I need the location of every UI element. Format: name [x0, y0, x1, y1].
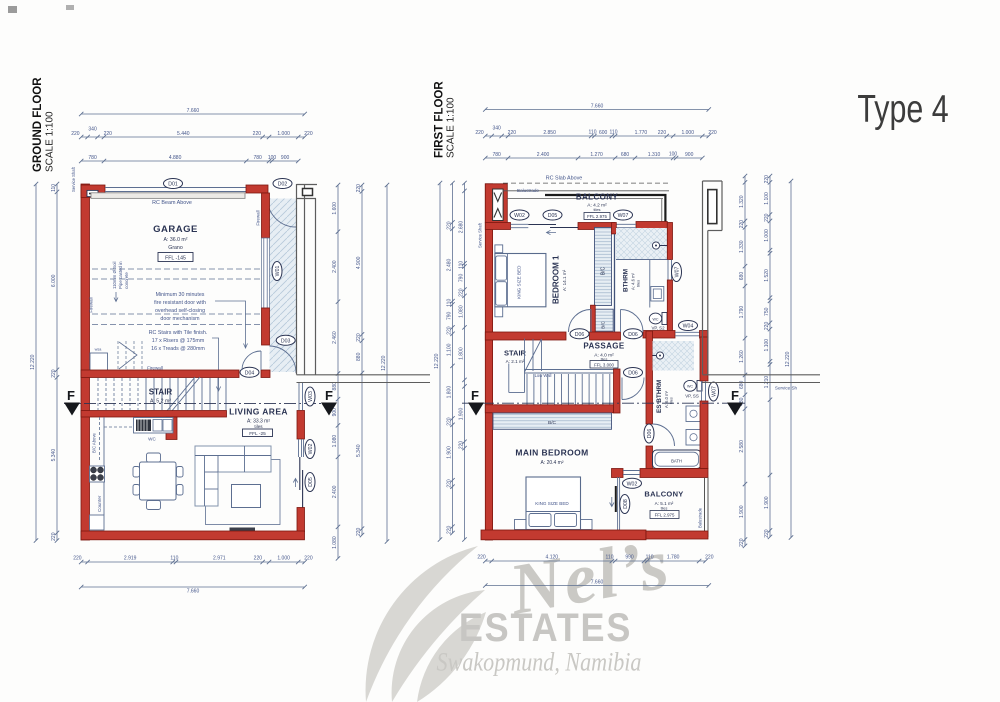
svg-text:7.660: 7.660 — [591, 579, 604, 585]
svg-text:220: 220 — [459, 288, 465, 297]
svg-text:door mechanism: door mechanism — [160, 316, 200, 322]
svg-text:220: 220 — [71, 131, 80, 137]
svg-text:W01: W01 — [275, 266, 281, 277]
svg-text:4.120: 4.120 — [546, 554, 559, 560]
svg-text:220: 220 — [764, 529, 770, 538]
svg-text:VP, S2: VP, S2 — [651, 326, 665, 331]
svg-text:D06: D06 — [575, 332, 585, 338]
svg-text:16 x Treads @ 280mm: 16 x Treads @ 280mm — [151, 346, 205, 352]
svg-text:110: 110 — [606, 554, 614, 560]
svg-text:220: 220 — [253, 131, 262, 137]
svg-text:F: F — [731, 388, 739, 403]
svg-text:tiles: tiles — [661, 507, 668, 511]
svg-text:B/C Above: B/C Above — [92, 433, 97, 453]
svg-text:Swakopmund, Namibia: Swakopmund, Namibia — [437, 649, 642, 677]
svg-text:340: 340 — [493, 125, 502, 131]
svg-text:780: 780 — [254, 155, 263, 161]
svg-text:A: 6.0 m²: A: 6.0 m² — [664, 390, 669, 408]
svg-text:1.770: 1.770 — [635, 130, 648, 136]
svg-text:1.080: 1.080 — [332, 435, 338, 448]
svg-text:B/C: B/C — [601, 266, 607, 275]
svg-text:W07: W07 — [712, 386, 718, 397]
svg-text:FFL 3.000: FFL 3.000 — [594, 362, 614, 367]
svg-text:Type 4: Type 4 — [857, 87, 948, 130]
svg-text:600: 600 — [599, 130, 608, 136]
svg-text:1.900: 1.900 — [739, 505, 745, 518]
svg-text:220: 220 — [73, 555, 82, 561]
svg-text:1.900: 1.900 — [459, 408, 465, 421]
svg-text:FFL -25: FFL -25 — [249, 431, 266, 437]
svg-text:A: 5.1 m²: A: 5.1 m² — [655, 501, 674, 506]
svg-text:110mm Ø Soil: 110mm Ø Soil — [112, 261, 117, 289]
svg-text:790: 790 — [459, 274, 465, 283]
svg-text:STAIR: STAIR — [504, 349, 527, 358]
svg-text:5.440: 5.440 — [177, 131, 190, 137]
svg-text:FFL 2.975: FFL 2.975 — [587, 214, 607, 219]
svg-text:Minimum 30 minutes: Minimum 30 minutes — [156, 292, 205, 298]
svg-text:B/C: B/C — [601, 320, 606, 328]
svg-text:220: 220 — [764, 322, 770, 331]
svg-text:790: 790 — [447, 311, 453, 320]
svg-text:1.260: 1.260 — [739, 350, 745, 363]
svg-text:STAIR: STAIR — [149, 388, 173, 397]
svg-text:W07: W07 — [675, 267, 681, 278]
svg-text:1.100: 1.100 — [764, 192, 770, 205]
svg-text:FFL 2.975: FFL 2.975 — [655, 513, 675, 518]
svg-text:W04: W04 — [683, 324, 694, 330]
svg-text:220: 220 — [459, 441, 465, 450]
svg-text:D05: D05 — [548, 213, 558, 219]
svg-text:D05: D05 — [308, 477, 314, 487]
svg-text:12.220: 12.220 — [785, 351, 791, 367]
svg-text:17 x Risers @ 175mm: 17 x Risers @ 175mm — [152, 338, 205, 344]
svg-text:220: 220 — [447, 417, 453, 426]
svg-text:W02: W02 — [514, 213, 525, 219]
svg-text:900: 900 — [332, 408, 338, 417]
svg-text:7.660: 7.660 — [187, 589, 200, 595]
svg-text:PASSAGE: PASSAGE — [583, 342, 625, 351]
svg-text:1.270: 1.270 — [590, 152, 603, 158]
svg-text:780: 780 — [88, 155, 97, 161]
svg-text:Grano: Grano — [168, 245, 183, 251]
svg-text:220: 220 — [51, 369, 57, 378]
svg-text:780: 780 — [493, 152, 502, 158]
svg-text:1.000: 1.000 — [277, 131, 290, 137]
svg-text:680: 680 — [739, 380, 745, 389]
svg-text:D06: D06 — [647, 429, 653, 439]
svg-text:2.460: 2.460 — [332, 331, 338, 344]
svg-text:100: 100 — [268, 155, 277, 161]
svg-text:220: 220 — [739, 538, 745, 547]
svg-text:220: 220 — [477, 554, 486, 560]
svg-text:D06: D06 — [628, 332, 638, 338]
svg-text:A: 36.0 m²: A: 36.0 m² — [164, 237, 188, 243]
svg-text:1.520: 1.520 — [764, 269, 770, 282]
svg-text:220: 220 — [447, 221, 453, 230]
svg-text:1.600: 1.600 — [332, 202, 338, 215]
svg-text:Service Shaft: Service Shaft — [71, 166, 76, 192]
svg-text:220: 220 — [104, 131, 113, 137]
svg-text:WC: WC — [148, 437, 156, 442]
svg-text:220: 220 — [254, 555, 263, 561]
svg-text:680: 680 — [621, 152, 630, 158]
svg-text:110: 110 — [610, 130, 618, 136]
svg-text:680: 680 — [739, 272, 745, 281]
svg-text:A: 2.1 m²: A: 2.1 m² — [506, 359, 525, 364]
svg-text:BALCONY: BALCONY — [644, 490, 683, 499]
svg-text:220: 220 — [705, 554, 714, 560]
svg-text:220: 220 — [447, 479, 453, 488]
svg-text:A: 14.1 m²: A: 14.1 m² — [562, 269, 567, 291]
svg-text:220: 220 — [764, 175, 770, 184]
svg-text:Pipe casted in: Pipe casted in — [118, 261, 123, 289]
svg-text:Firewall: Firewall — [255, 210, 260, 225]
svg-text:Counter: Counter — [97, 495, 102, 512]
svg-text:Service Sh: Service Sh — [775, 386, 798, 391]
svg-text:W07: W07 — [618, 213, 629, 219]
svg-text:overhead self-closing: overhead self-closing — [155, 308, 205, 314]
svg-text:750: 750 — [764, 307, 770, 316]
svg-text:1.900: 1.900 — [764, 496, 770, 509]
svg-text:2.971: 2.971 — [213, 555, 226, 561]
svg-text:A: 20.4 m²: A: 20.4 m² — [540, 460, 563, 466]
svg-text:220: 220 — [708, 130, 717, 136]
svg-text:tiles: tiles — [254, 424, 263, 429]
svg-text:220: 220 — [658, 130, 667, 136]
svg-text:220: 220 — [356, 333, 362, 342]
svg-text:D02: D02 — [278, 182, 288, 188]
svg-text:B/C: B/C — [548, 420, 557, 426]
svg-text:2.400: 2.400 — [332, 260, 338, 273]
svg-text:1.800: 1.800 — [459, 347, 465, 360]
svg-text:D03: D03 — [281, 338, 291, 344]
svg-text:990: 990 — [625, 554, 634, 560]
svg-text:F: F — [325, 388, 333, 403]
svg-text:1.790: 1.790 — [739, 306, 745, 319]
svg-text:W03: W03 — [308, 391, 314, 402]
svg-text:wsa: wsa — [95, 348, 103, 352]
svg-text:900: 900 — [281, 155, 290, 161]
svg-text:tiles: tiles — [593, 207, 600, 212]
svg-text:2.400: 2.400 — [332, 485, 338, 498]
svg-text:D08: D08 — [623, 499, 629, 509]
svg-text:BEDROOM 1: BEDROOM 1 — [552, 255, 561, 304]
svg-text:WC: WC — [653, 317, 659, 321]
svg-text:2.919: 2.919 — [124, 555, 137, 561]
svg-text:2.580: 2.580 — [739, 440, 745, 453]
svg-text:1.100: 1.100 — [764, 339, 770, 352]
svg-text:ESTATES: ESTATES — [459, 606, 632, 650]
svg-text:220: 220 — [508, 130, 517, 136]
svg-text:900: 900 — [685, 152, 694, 158]
svg-text:110: 110 — [51, 184, 57, 192]
svg-text:F: F — [471, 388, 479, 403]
svg-text:SCALE 1:100: SCALE 1:100 — [45, 111, 56, 172]
svg-text:4.900: 4.900 — [356, 256, 362, 269]
svg-text:110: 110 — [447, 299, 453, 307]
svg-text:D01: D01 — [168, 182, 178, 188]
svg-text:1.000: 1.000 — [681, 130, 694, 136]
svg-text:Balustrade: Balustrade — [698, 507, 703, 528]
svg-text:220: 220 — [447, 326, 453, 335]
svg-text:12.220: 12.220 — [381, 355, 387, 371]
svg-text:1.080: 1.080 — [332, 536, 338, 549]
svg-text:KING SIZE BED: KING SIZE BED — [517, 265, 522, 299]
svg-text:1.310: 1.310 — [648, 152, 661, 158]
svg-text:110: 110 — [459, 261, 465, 269]
svg-text:6.000: 6.000 — [51, 274, 57, 287]
svg-text:Firewall: Firewall — [89, 297, 94, 312]
svg-text:fire resistant door with: fire resistant door with — [154, 300, 206, 306]
svg-text:220: 220 — [739, 220, 745, 229]
svg-text:SCALE 1:100: SCALE 1:100 — [446, 97, 457, 158]
svg-text:12.220: 12.220 — [434, 353, 440, 369]
svg-text:VP, SS: VP, SS — [685, 394, 699, 399]
svg-text:ES BTHRM: ES BTHRM — [656, 380, 663, 413]
svg-text:WC: WC — [687, 385, 693, 389]
svg-text:MAIN BEDROOM: MAIN BEDROOM — [515, 448, 588, 458]
svg-text:GARAGE: GARAGE — [153, 224, 198, 235]
svg-text:KING SIZE BED: KING SIZE BED — [535, 501, 569, 506]
svg-text:1.780: 1.780 — [667, 554, 680, 560]
svg-text:220: 220 — [304, 131, 313, 137]
svg-text:7.660: 7.660 — [187, 108, 200, 114]
svg-text:1.800: 1.800 — [447, 386, 453, 399]
svg-text:220: 220 — [475, 130, 484, 136]
svg-text:BTHRM: BTHRM — [623, 269, 630, 292]
svg-text:RC Slab Above: RC Slab Above — [546, 176, 583, 182]
svg-text:LIVING AREA: LIVING AREA — [229, 407, 288, 417]
svg-text:RC Stairs with Tile finish.: RC Stairs with Tile finish. — [149, 330, 208, 336]
svg-text:220: 220 — [51, 532, 57, 541]
svg-text:1.320: 1.320 — [739, 195, 745, 208]
svg-text:220: 220 — [764, 213, 770, 222]
svg-text:1.330: 1.330 — [739, 240, 745, 253]
svg-text:tiles: tiles — [636, 280, 641, 287]
svg-text:5.340: 5.340 — [356, 444, 362, 457]
svg-text:340: 340 — [88, 126, 97, 132]
svg-text:W02: W02 — [627, 481, 638, 487]
svg-text:D06: D06 — [628, 371, 638, 377]
svg-text:2.480: 2.480 — [447, 258, 453, 271]
svg-text:880: 880 — [332, 382, 338, 391]
svg-text:220: 220 — [356, 184, 362, 193]
svg-text:2.850: 2.850 — [543, 130, 556, 136]
svg-text:1.100: 1.100 — [447, 343, 453, 356]
svg-text:D04: D04 — [245, 370, 255, 376]
svg-text:GROUND FLOOR: GROUND FLOOR — [32, 77, 44, 172]
svg-text:concrete: concrete — [124, 272, 129, 289]
svg-text:220: 220 — [356, 527, 362, 536]
svg-text:2.680: 2.680 — [459, 221, 465, 234]
svg-text:F: F — [67, 388, 75, 403]
svg-text:1.000: 1.000 — [277, 555, 290, 561]
svg-text:4.880: 4.880 — [169, 155, 182, 161]
svg-text:1.080: 1.080 — [459, 305, 465, 318]
svg-text:220: 220 — [447, 525, 453, 534]
svg-text:W02: W02 — [308, 444, 314, 455]
svg-text:5.340: 5.340 — [51, 449, 57, 462]
svg-text:Service Shaft: Service Shaft — [478, 222, 483, 248]
svg-text:110: 110 — [646, 554, 654, 560]
svg-text:Balustrade: Balustrade — [517, 188, 539, 193]
svg-text:FFL -145: FFL -145 — [165, 255, 186, 261]
svg-text:RC Beam Above: RC Beam Above — [152, 200, 192, 206]
svg-text:Low Wall: Low Wall — [535, 373, 552, 378]
svg-text:1.000: 1.000 — [764, 229, 770, 242]
svg-text:7.660: 7.660 — [591, 103, 604, 109]
svg-text:2.400: 2.400 — [537, 152, 550, 158]
svg-text:110: 110 — [170, 555, 178, 561]
svg-text:BALCONY: BALCONY — [576, 193, 619, 202]
svg-text:100: 100 — [669, 152, 678, 158]
svg-text:1.900: 1.900 — [447, 446, 453, 459]
svg-text:880: 880 — [356, 352, 362, 361]
svg-text:12.220: 12.220 — [30, 354, 36, 370]
svg-text:220: 220 — [304, 555, 313, 561]
svg-text:FIRST FLOOR: FIRST FLOOR — [434, 81, 446, 158]
svg-text:BATH: BATH — [671, 458, 682, 463]
svg-text:110: 110 — [589, 130, 597, 136]
